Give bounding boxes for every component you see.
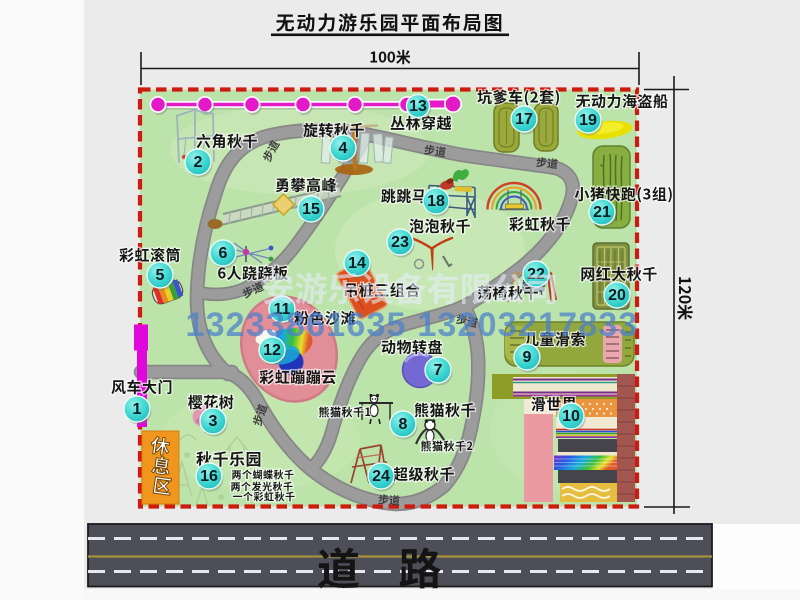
svg-text:4: 4 bbox=[339, 140, 348, 157]
svg-text:超级秋千: 超级秋千 bbox=[393, 464, 455, 485]
svg-text:2: 2 bbox=[194, 154, 203, 171]
svg-text:20: 20 bbox=[608, 287, 626, 304]
svg-text:熊猫秋千: 熊猫秋千 bbox=[414, 400, 476, 421]
svg-text:一个彩虹秋千: 一个彩虹秋千 bbox=[233, 489, 296, 504]
svg-text:1: 1 bbox=[133, 401, 142, 418]
svg-text:步道: 步道 bbox=[423, 142, 447, 161]
svg-text:勇攀高峰: 勇攀高峰 bbox=[275, 175, 337, 196]
svg-text:步道: 步道 bbox=[535, 154, 559, 172]
svg-text:24: 24 bbox=[372, 468, 390, 485]
svg-text:彩虹秋千: 彩虹秋千 bbox=[509, 214, 571, 235]
svg-text:泡泡秋千: 泡泡秋千 bbox=[409, 216, 471, 237]
svg-text:16: 16 bbox=[200, 468, 218, 485]
svg-text:彩虹滚筒: 彩虹滚筒 bbox=[119, 245, 181, 266]
svg-text:无动力游乐园平面布局图: 无动力游乐园平面布局图 bbox=[276, 9, 505, 36]
svg-text:彩虹蹦蹦云: 彩虹蹦蹦云 bbox=[259, 367, 337, 388]
svg-text:10: 10 bbox=[562, 408, 580, 425]
svg-text:3: 3 bbox=[209, 413, 218, 430]
svg-text:13: 13 bbox=[409, 98, 427, 115]
svg-text:区: 区 bbox=[151, 471, 174, 500]
svg-text:熊猫秋千1: 熊猫秋千1 bbox=[319, 404, 372, 420]
svg-text:100米: 100米 bbox=[369, 47, 411, 68]
svg-text:21: 21 bbox=[593, 204, 611, 221]
svg-text:15: 15 bbox=[302, 201, 320, 218]
svg-text:12: 12 bbox=[263, 342, 281, 359]
svg-text:网红大秋千: 网红大秋千 bbox=[580, 264, 658, 285]
svg-text:熊猫秋千2: 熊猫秋千2 bbox=[421, 438, 474, 454]
svg-text:7: 7 bbox=[434, 362, 443, 379]
svg-text:18: 18 bbox=[427, 193, 445, 210]
svg-text:5: 5 bbox=[156, 267, 165, 284]
svg-text:风车大门: 风车大门 bbox=[111, 377, 173, 398]
svg-text:步道: 步道 bbox=[377, 491, 400, 508]
svg-text:安游乐设备有限公司: 安游乐设备有限公司 bbox=[262, 263, 559, 311]
svg-text:13233861635 13203217833: 13233861635 13203217833 bbox=[185, 306, 638, 344]
svg-text:跳跳马: 跳跳马 bbox=[381, 186, 428, 207]
svg-text:坑爹车(2套): 坑爹车(2套) bbox=[477, 87, 561, 108]
svg-text:路: 路 bbox=[399, 536, 442, 598]
svg-text:23: 23 bbox=[391, 234, 409, 251]
svg-text:9: 9 bbox=[523, 349, 532, 366]
svg-text:17: 17 bbox=[515, 111, 533, 128]
svg-text:旋转秋千: 旋转秋千 bbox=[303, 120, 365, 141]
svg-text:六角秋千: 六角秋千 bbox=[196, 131, 258, 152]
svg-text:6: 6 bbox=[219, 245, 228, 262]
svg-text:19: 19 bbox=[579, 112, 597, 129]
svg-text:道: 道 bbox=[317, 536, 360, 598]
svg-text:小猪快跑(3组): 小猪快跑(3组) bbox=[574, 184, 673, 205]
svg-text:8: 8 bbox=[399, 416, 408, 433]
svg-text:120米: 120米 bbox=[674, 276, 698, 320]
